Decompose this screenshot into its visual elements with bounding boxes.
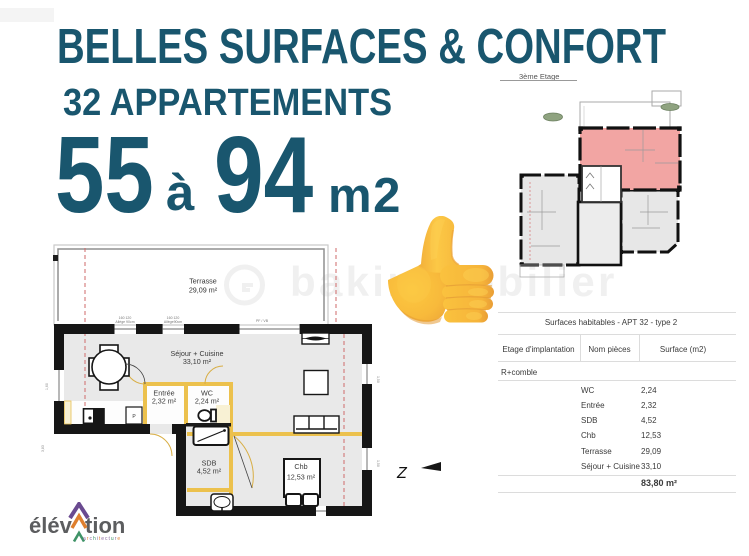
svg-text:33,10 m²: 33,10 m² <box>183 357 212 366</box>
svg-text:1,50: 1,50 <box>376 460 380 467</box>
svg-text:12,53 m²: 12,53 m² <box>287 473 316 482</box>
svg-text:Allège 90cm: Allège 90cm <box>115 320 134 324</box>
svg-text:3,83: 3,83 <box>41 445 45 452</box>
svg-text:Z: Z <box>396 465 408 482</box>
svg-text:1,50: 1,50 <box>376 376 380 383</box>
svg-text:Chb: Chb <box>294 462 307 471</box>
svg-text:PF / VB: PF / VB <box>256 319 269 323</box>
svg-text:2,24 m²: 2,24 m² <box>195 397 220 406</box>
svg-text:29,09 m²: 29,09 m² <box>189 286 218 295</box>
svg-text:1,60: 1,60 <box>45 383 49 390</box>
svg-text:Allège90cm: Allège90cm <box>164 320 182 324</box>
svg-text:2,32 m²: 2,32 m² <box>152 397 177 406</box>
svg-text:4,52 m²: 4,52 m² <box>197 467 222 476</box>
svg-text:Terrasse: Terrasse <box>189 277 217 286</box>
